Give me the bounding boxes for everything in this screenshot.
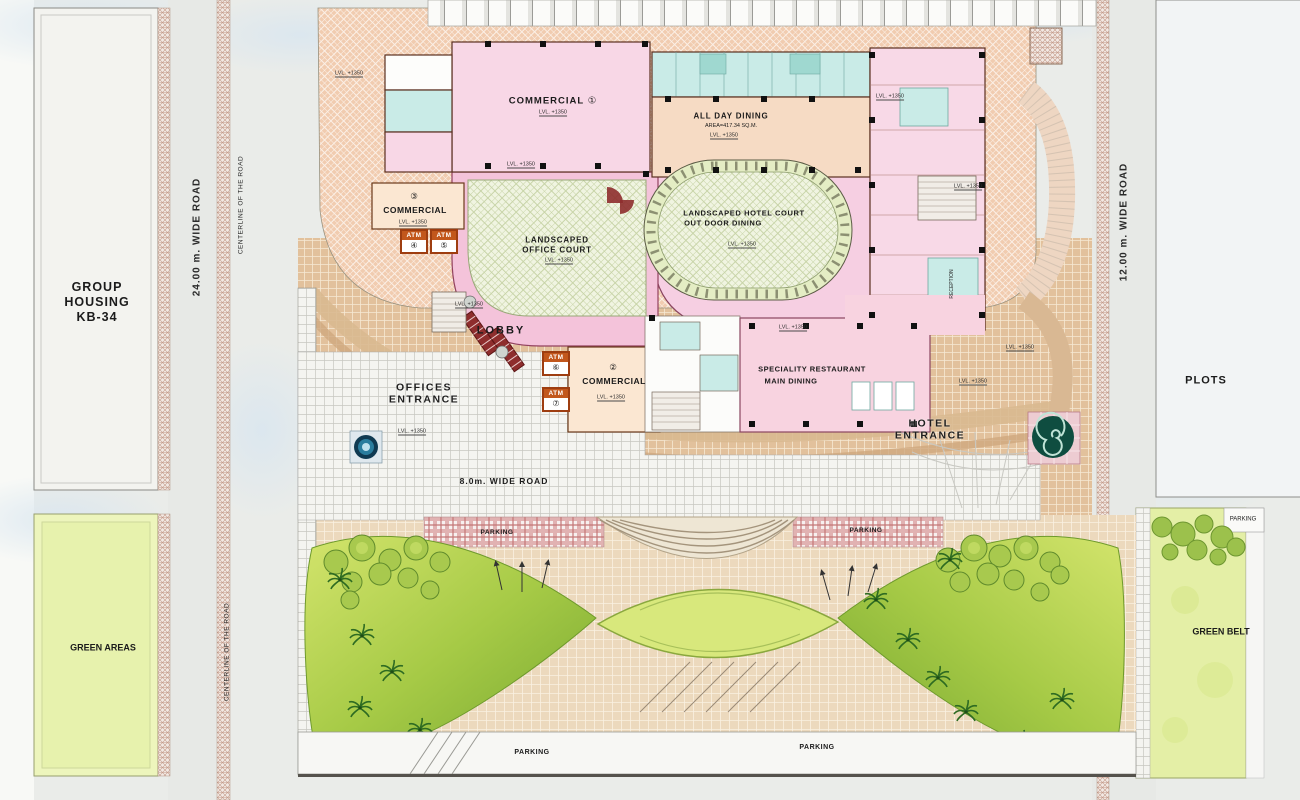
mid-service-rooms	[645, 316, 740, 432]
right-wing-block	[870, 48, 985, 330]
left-centerline-strip	[217, 0, 230, 800]
spiral-fountain	[1028, 412, 1080, 464]
bottom-road	[298, 732, 1136, 777]
plots-area	[1156, 0, 1300, 497]
commercial-1-block	[452, 42, 650, 172]
parking-strip	[424, 517, 604, 547]
commercial-3-block	[372, 183, 464, 229]
site-plan-page: GROUP HOUSING KB-34 24.00 m. WIDE ROAD C…	[0, 0, 1300, 800]
fountain	[350, 431, 382, 463]
group-housing-plot	[34, 8, 158, 490]
green-belt-plot	[1136, 508, 1264, 778]
toilet-block	[385, 90, 452, 132]
tower-grid-above	[428, 0, 1096, 26]
service-block	[652, 52, 870, 97]
hotel-court	[658, 172, 838, 288]
parking-strip	[793, 517, 943, 547]
garden-layer	[298, 517, 1136, 777]
site-plan-graphic	[0, 0, 1300, 800]
service-stair	[1030, 28, 1062, 64]
